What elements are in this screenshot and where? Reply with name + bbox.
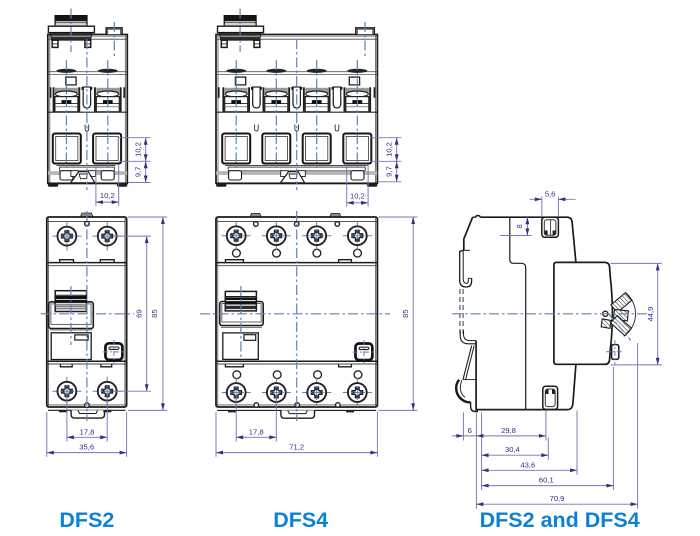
svg-text:5,6: 5,6 [545, 190, 556, 199]
svg-text:29,8: 29,8 [501, 426, 516, 435]
svg-text:DFS4: DFS4 [273, 508, 328, 532]
svg-text:43,6: 43,6 [520, 460, 535, 469]
svg-text:9,7: 9,7 [384, 166, 393, 177]
svg-text:DFS2 and DFS4: DFS2 and DFS4 [480, 508, 640, 532]
svg-text:DFS2: DFS2 [59, 508, 114, 532]
svg-text:71,2: 71,2 [289, 442, 304, 451]
svg-text:35,6: 35,6 [79, 442, 94, 451]
svg-text:10,2: 10,2 [384, 142, 393, 157]
svg-text:10,2: 10,2 [133, 142, 142, 157]
svg-text:70,9: 70,9 [550, 494, 565, 503]
svg-text:44,9: 44,9 [646, 307, 655, 322]
svg-text:10,2: 10,2 [100, 191, 115, 200]
svg-text:85: 85 [401, 309, 410, 317]
svg-text:17,8: 17,8 [80, 427, 95, 436]
svg-text:69: 69 [134, 309, 143, 317]
svg-text:60,1: 60,1 [539, 476, 554, 485]
svg-text:17,8: 17,8 [249, 427, 264, 436]
svg-text:8: 8 [515, 224, 524, 228]
svg-text:10,2: 10,2 [350, 191, 365, 200]
svg-text:9,7: 9,7 [133, 167, 142, 178]
svg-text:85: 85 [150, 309, 159, 317]
svg-text:6: 6 [468, 426, 472, 435]
svg-text:30,4: 30,4 [505, 445, 520, 454]
